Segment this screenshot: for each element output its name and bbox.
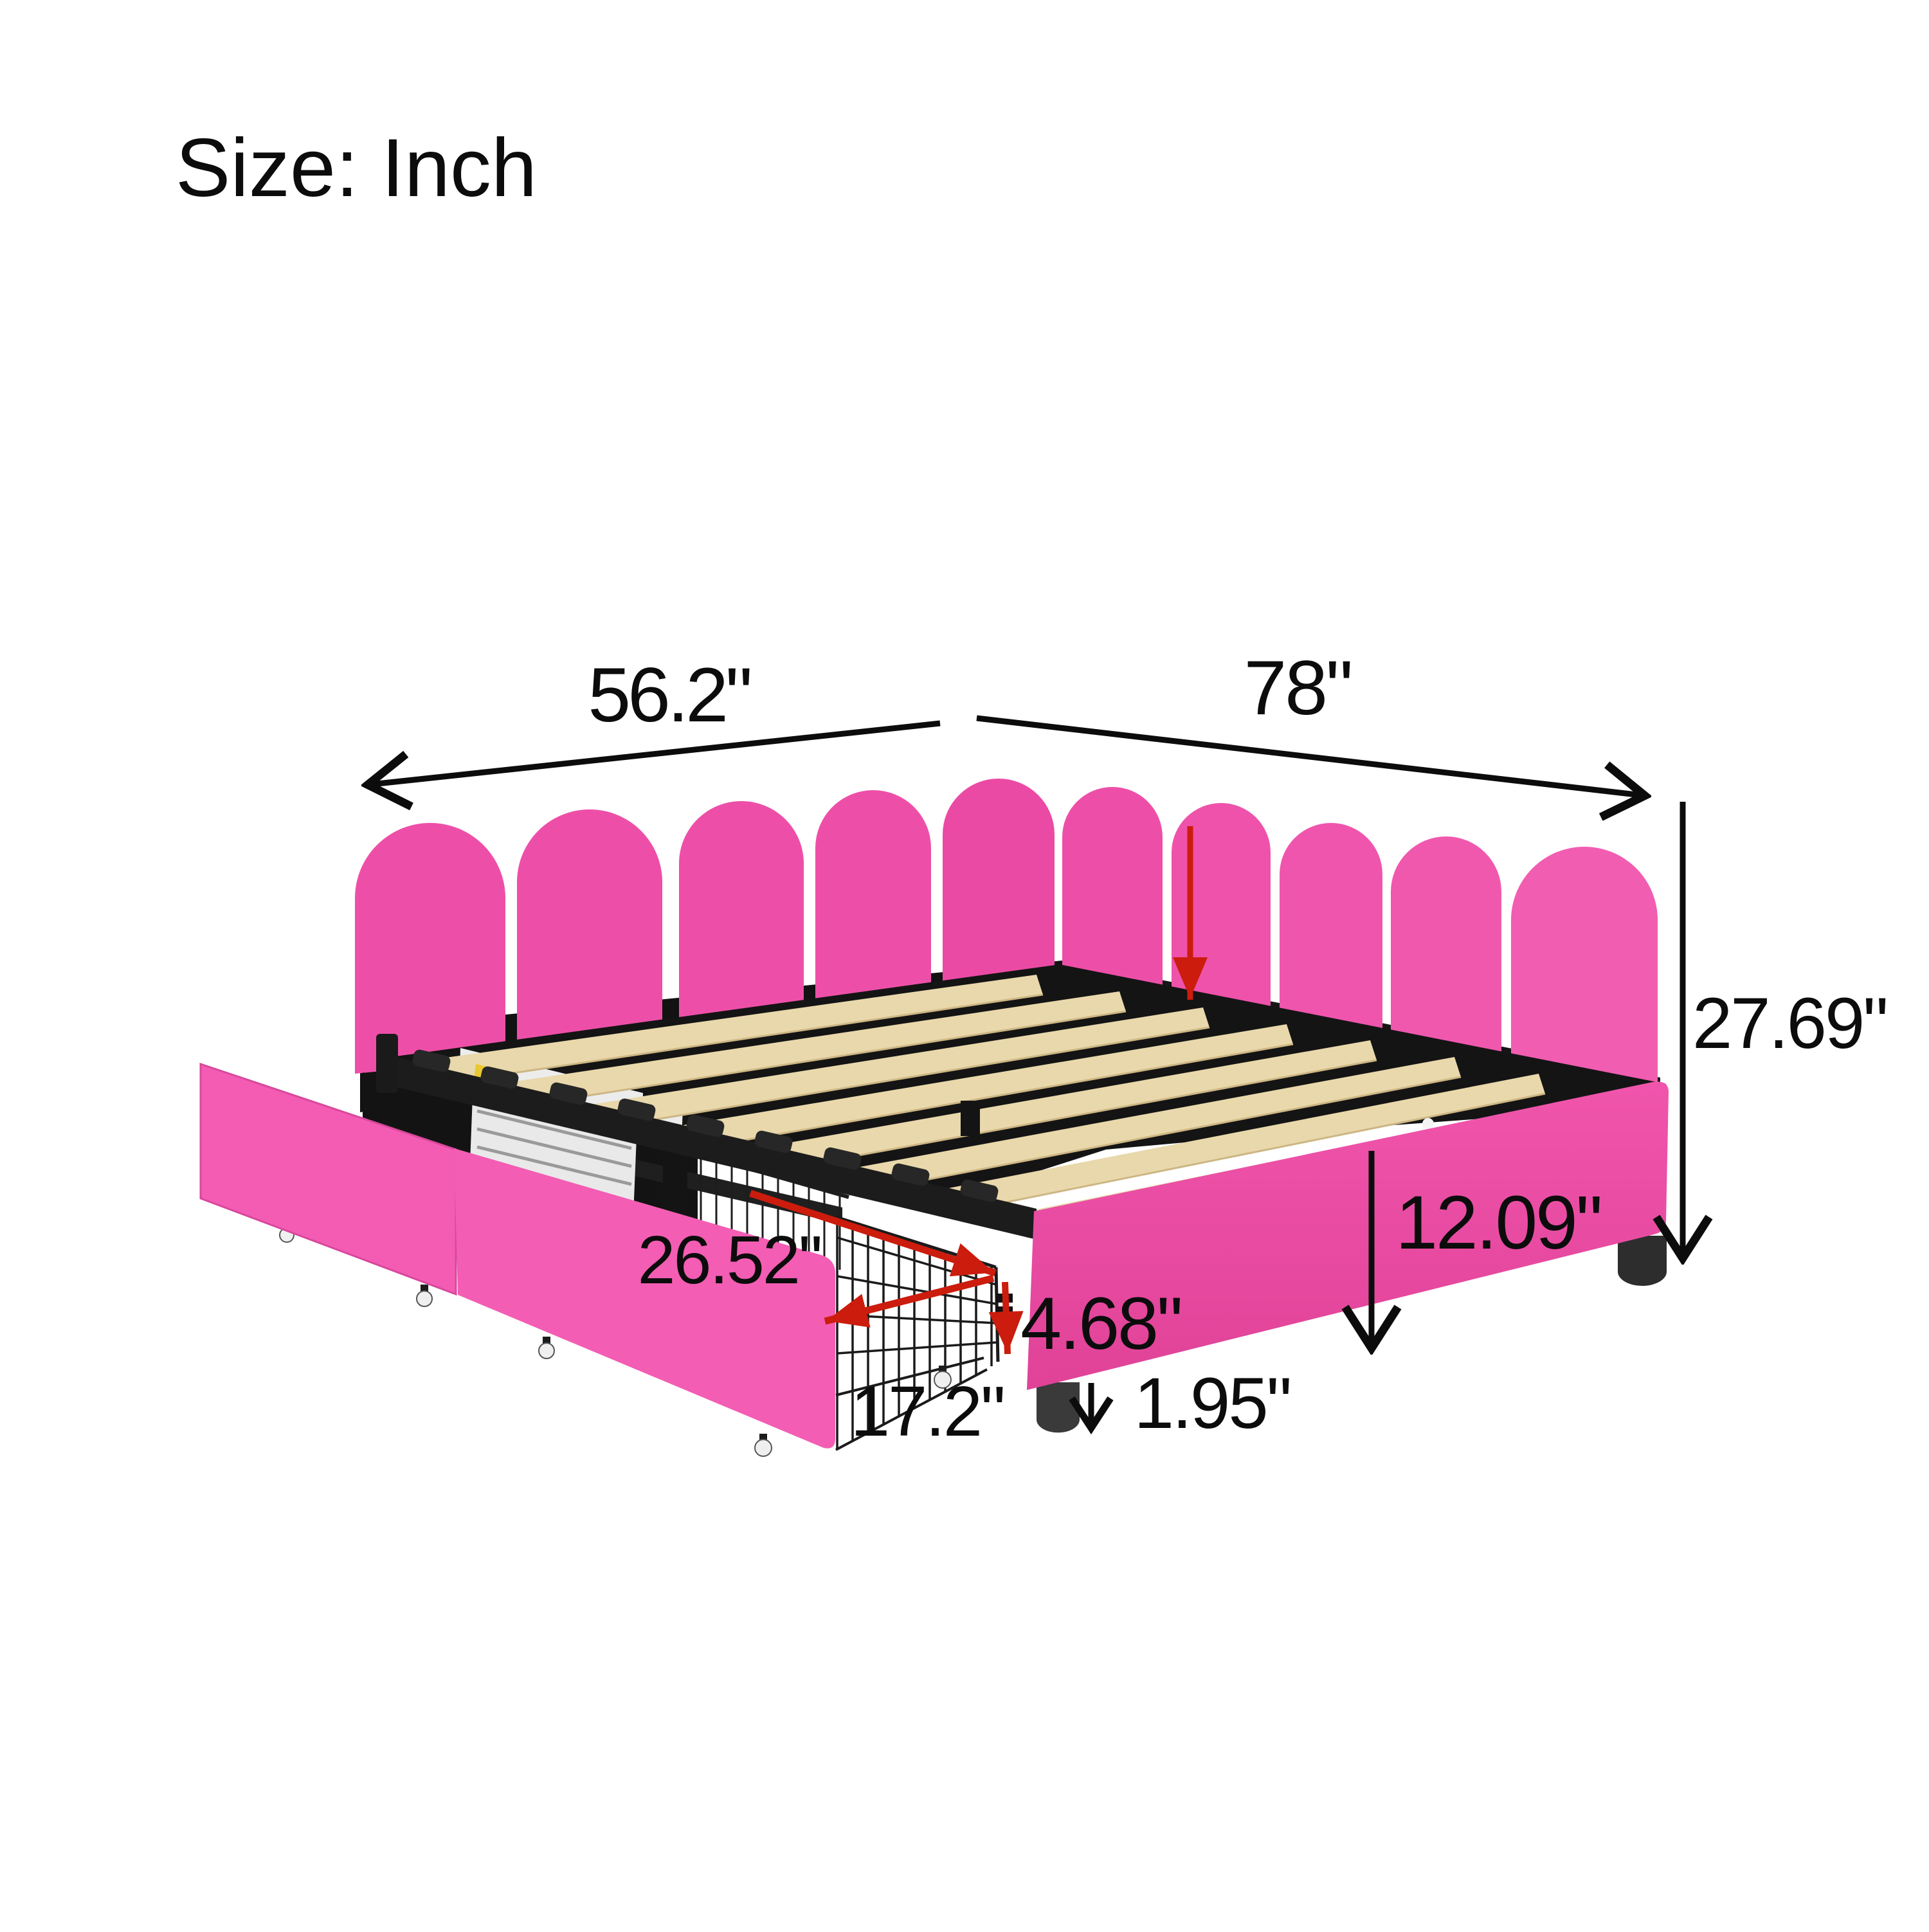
svg-text:17.2": 17.2"	[851, 1372, 1004, 1451]
svg-text:27.69": 27.69"	[1692, 983, 1887, 1063]
svg-text:26.52": 26.52"	[638, 1222, 821, 1298]
svg-text:1.95": 1.95"	[1134, 1363, 1291, 1443]
svg-text:12.09": 12.09"	[1395, 1180, 1600, 1265]
svg-text:56.2": 56.2"	[588, 652, 750, 738]
svg-text:4.68": 4.68"	[1020, 1283, 1181, 1365]
svg-text:Size: Inch: Size: Inch	[176, 122, 537, 214]
svg-text:78": 78"	[1244, 645, 1351, 731]
